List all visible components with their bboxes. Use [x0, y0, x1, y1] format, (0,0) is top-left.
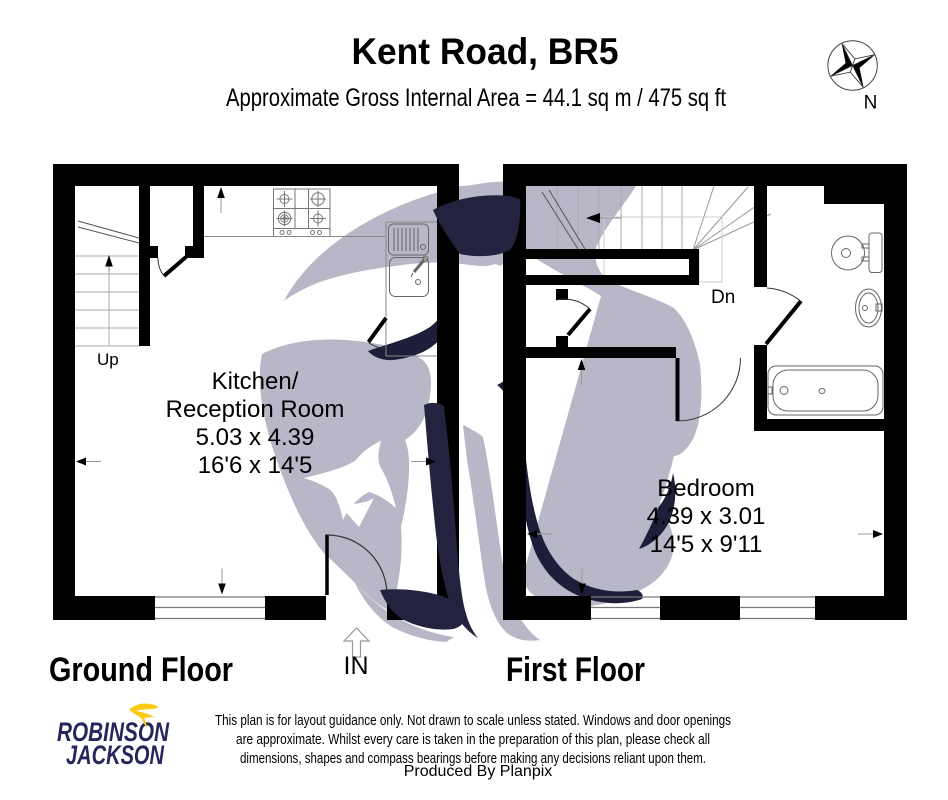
svg-text:Approximate Gross Internal Are: Approximate Gross Internal Area = 44.1 s…	[226, 84, 726, 112]
svg-text:are approximate. Whilst every: are approximate. Whilst every care is ta…	[236, 732, 710, 748]
svg-text:This plan is for layout guidan: This plan is for layout guidance only. N…	[215, 713, 731, 729]
svg-text:14'5 x 9'11: 14'5 x 9'11	[650, 531, 763, 558]
svg-text:First Floor: First Floor	[506, 651, 645, 689]
svg-text:IN: IN	[344, 652, 369, 680]
svg-text:Kitchen/: Kitchen/	[212, 368, 299, 395]
svg-text:Up: Up	[97, 350, 119, 369]
svg-text:Produced By Planpix: Produced By Planpix	[404, 763, 553, 780]
svg-text:4.39 x 3.01: 4.39 x 3.01	[647, 503, 766, 530]
svg-text:5.03 x 4.39: 5.03 x 4.39	[196, 424, 315, 451]
svg-text:Bedroom: Bedroom	[657, 475, 754, 502]
svg-text:Kent Road, BR5: Kent Road, BR5	[352, 31, 619, 72]
svg-text:Ground Floor: Ground Floor	[49, 651, 233, 689]
svg-text:Reception Room: Reception Room	[166, 396, 345, 423]
svg-text:Dn: Dn	[711, 287, 735, 308]
svg-text:N: N	[864, 93, 878, 114]
svg-text:16'6 x 14'5: 16'6 x 14'5	[198, 452, 313, 479]
svg-text:JACKSON: JACKSON	[66, 740, 164, 770]
